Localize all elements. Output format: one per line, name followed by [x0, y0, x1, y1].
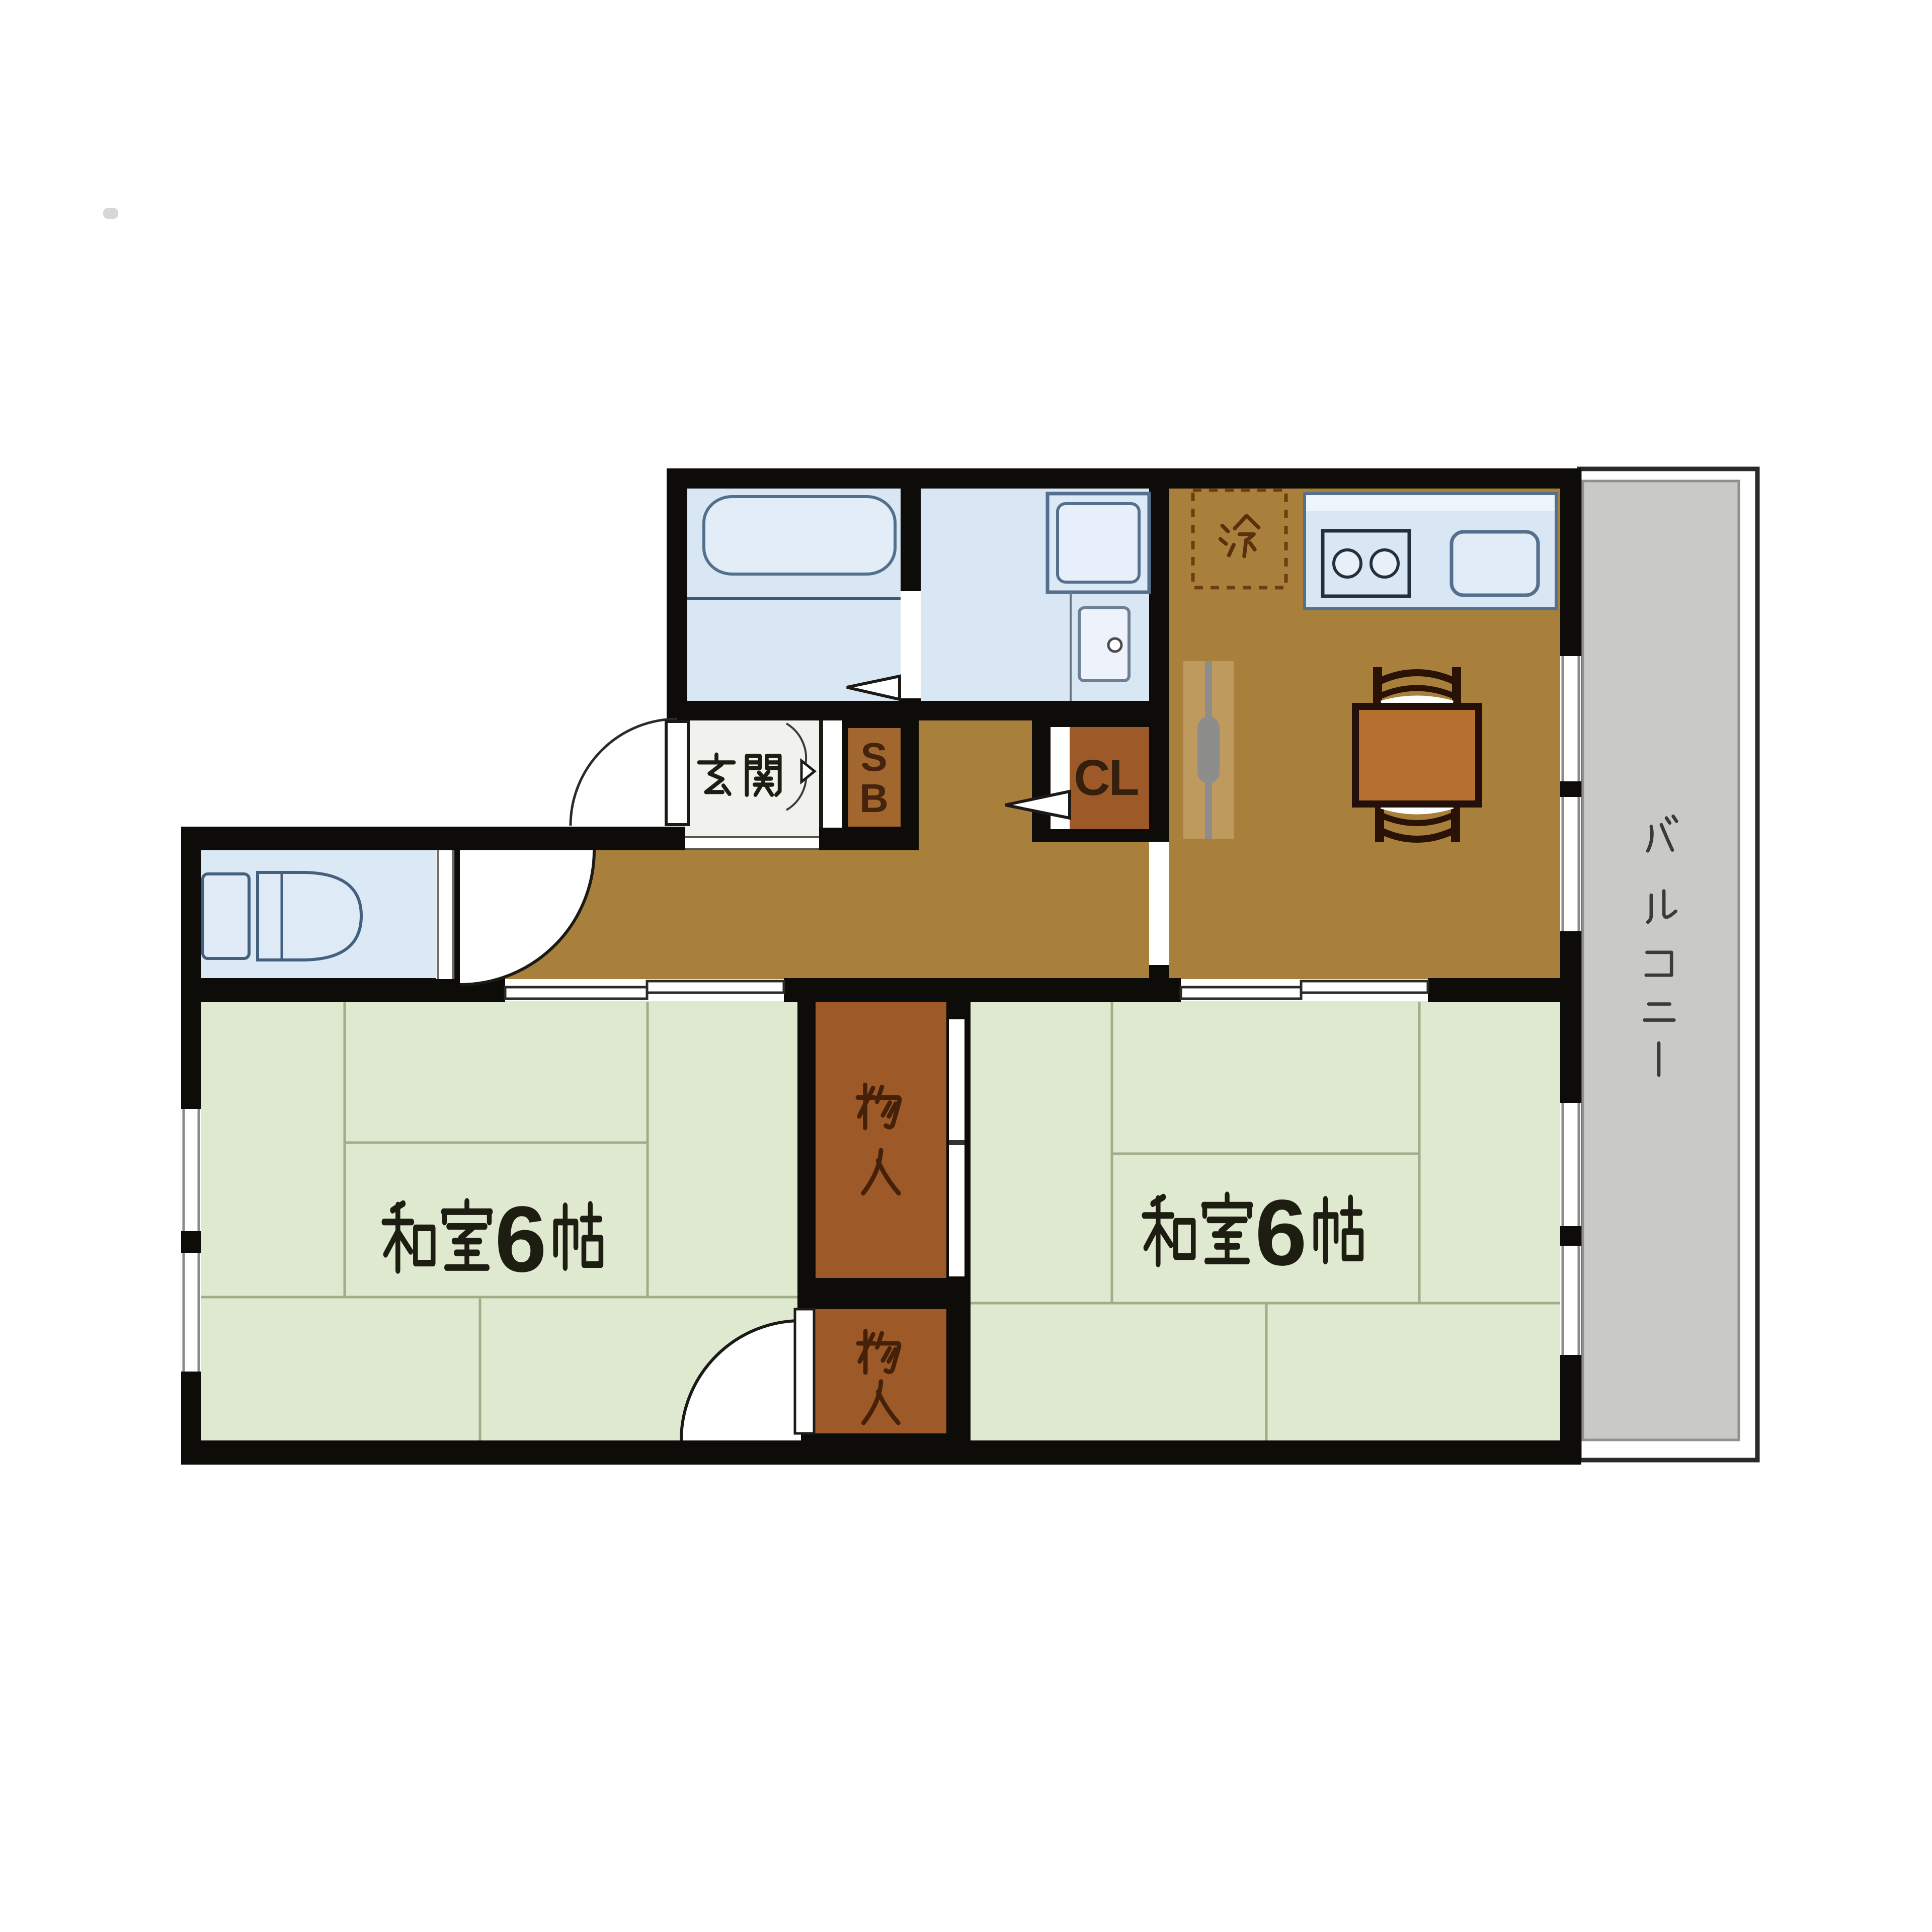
svg-text:6: 6 [1255, 1181, 1307, 1285]
svg-text:S: S [860, 735, 887, 779]
svg-text:B: B [859, 776, 889, 821]
svg-text:6: 6 [495, 1187, 546, 1292]
svg-text:CL: CL [1074, 750, 1138, 806]
